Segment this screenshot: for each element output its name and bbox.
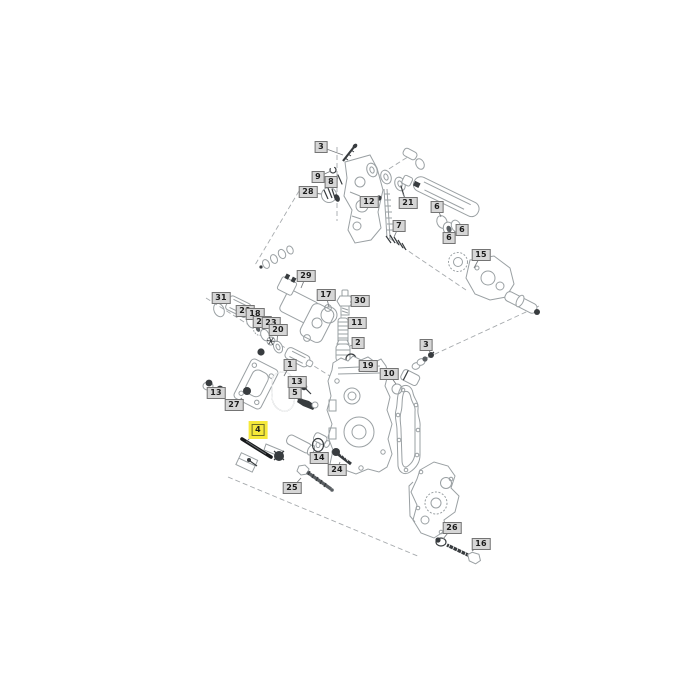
part-callout-20[interactable]: 20 bbox=[269, 324, 288, 336]
part-callout-3[interactable]: 3 bbox=[420, 339, 433, 351]
part-callout-3[interactable]: 3 bbox=[315, 141, 328, 153]
part-callout-16[interactable]: 16 bbox=[472, 538, 491, 550]
part-callout-13[interactable]: 13 bbox=[207, 387, 226, 399]
part-callout-4-highlighted[interactable]: 4 bbox=[252, 424, 265, 436]
part-callout-1[interactable]: 1 bbox=[284, 359, 297, 371]
part-callout-30[interactable]: 30 bbox=[351, 295, 370, 307]
part-callout-24[interactable]: 24 bbox=[328, 464, 347, 476]
part-callout-5[interactable]: 5 bbox=[289, 387, 302, 399]
part-callout-2[interactable]: 2 bbox=[352, 337, 365, 349]
part-callout-28[interactable]: 28 bbox=[299, 186, 318, 198]
diagram-page: 3982812216766152917313020182223112023119… bbox=[0, 0, 700, 700]
part-callout-10[interactable]: 10 bbox=[380, 368, 399, 380]
part-callout-8[interactable]: 8 bbox=[325, 176, 338, 188]
part-callout-6[interactable]: 6 bbox=[431, 201, 444, 213]
part-callout-11[interactable]: 11 bbox=[348, 317, 367, 329]
part-callout-12[interactable]: 12 bbox=[360, 196, 379, 208]
part-callout-15[interactable]: 15 bbox=[472, 249, 491, 261]
part-callout-17[interactable]: 17 bbox=[317, 289, 336, 301]
part-callout-9[interactable]: 9 bbox=[312, 171, 325, 183]
part-callout-25[interactable]: 25 bbox=[283, 482, 302, 494]
part-callout-6[interactable]: 6 bbox=[443, 232, 456, 244]
callout-layer: 3982812216766152917313020182223112023119… bbox=[0, 0, 700, 700]
part-callout-26[interactable]: 26 bbox=[443, 522, 462, 534]
part-callout-31[interactable]: 31 bbox=[212, 292, 231, 304]
part-callout-27[interactable]: 27 bbox=[225, 399, 244, 411]
part-callout-6[interactable]: 6 bbox=[456, 224, 469, 236]
part-callout-7[interactable]: 7 bbox=[393, 220, 406, 232]
part-callout-14[interactable]: 14 bbox=[310, 452, 329, 464]
part-callout-19[interactable]: 19 bbox=[359, 360, 378, 372]
part-callout-21[interactable]: 21 bbox=[399, 197, 418, 209]
part-callout-29[interactable]: 29 bbox=[297, 270, 316, 282]
